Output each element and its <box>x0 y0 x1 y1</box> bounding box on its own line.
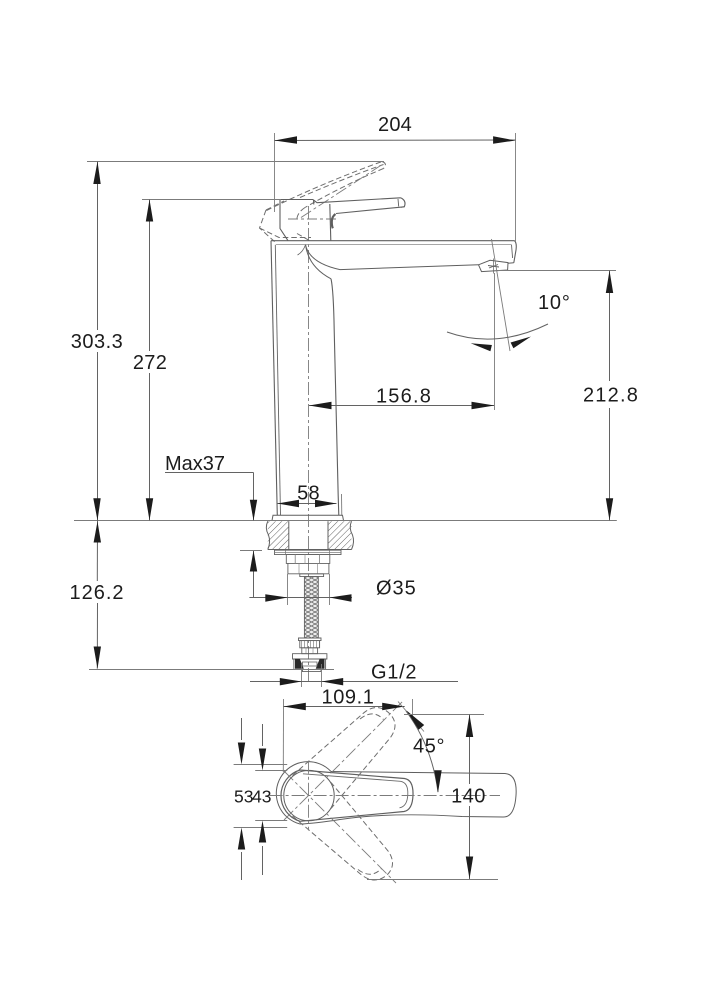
svg-text:140: 140 <box>451 786 486 808</box>
svg-text:58: 58 <box>297 483 320 505</box>
svg-text:109.1: 109.1 <box>321 687 374 709</box>
svg-text:272: 272 <box>133 352 167 374</box>
svg-text:156.8: 156.8 <box>376 386 432 408</box>
svg-text:53: 53 <box>234 787 253 807</box>
svg-text:10°: 10° <box>538 292 571 314</box>
svg-text:303.3: 303.3 <box>71 331 124 353</box>
svg-text:Max37: Max37 <box>165 453 225 475</box>
svg-text:43: 43 <box>252 787 271 807</box>
svg-text:204: 204 <box>378 114 412 136</box>
svg-text:G1/2: G1/2 <box>371 662 417 684</box>
svg-text:212.8: 212.8 <box>583 385 639 407</box>
svg-text:126.2: 126.2 <box>69 582 124 604</box>
svg-text:Ø35: Ø35 <box>376 578 417 600</box>
svg-text:45°: 45° <box>413 736 445 758</box>
